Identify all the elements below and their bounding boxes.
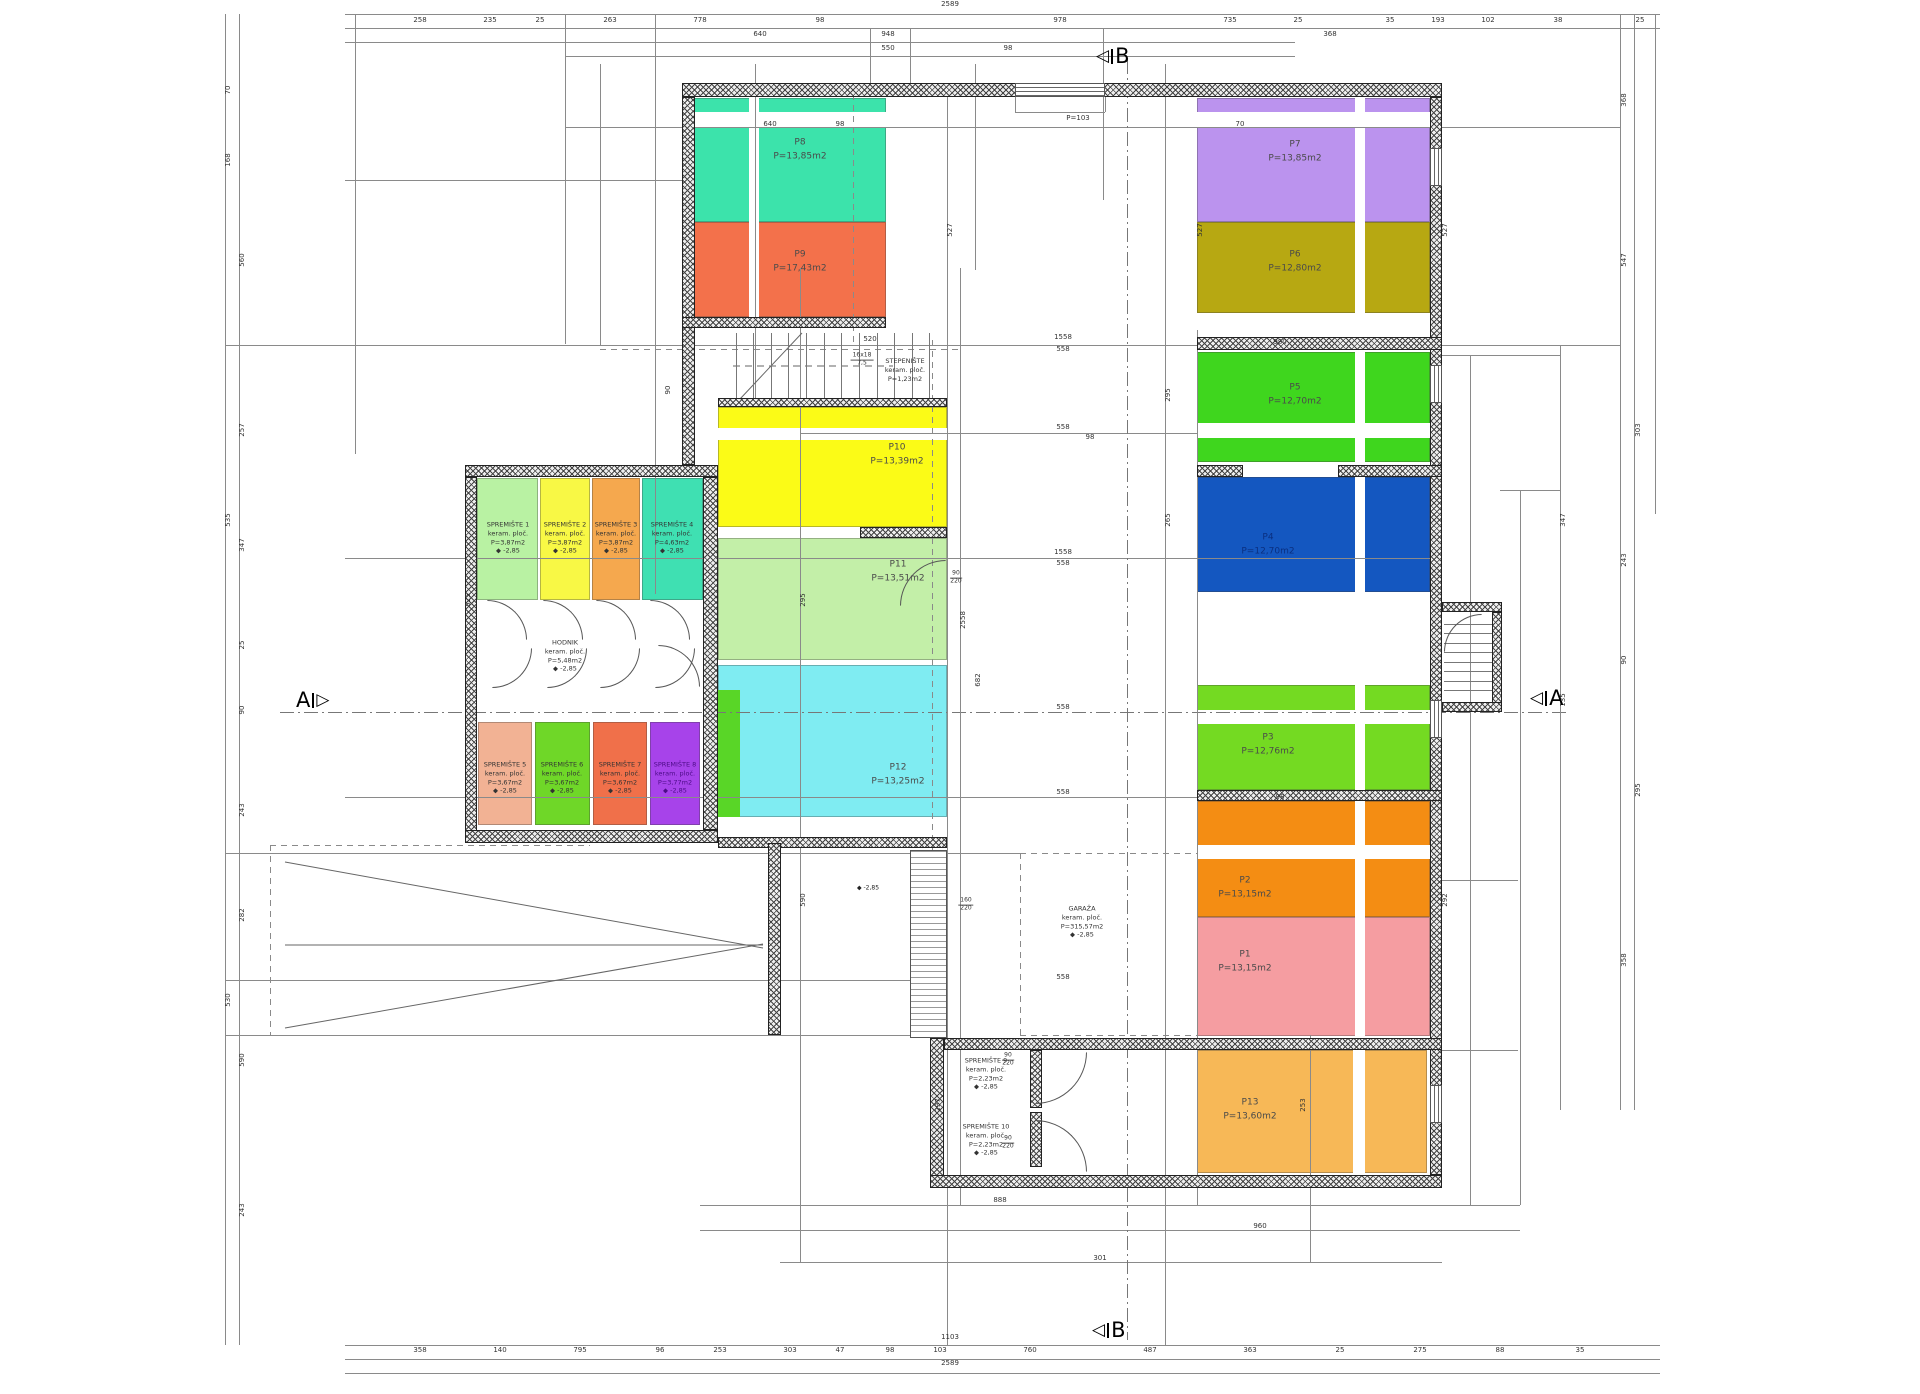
- dimension-line: [225, 14, 226, 1345]
- size-fraction-label: 90220: [1002, 1053, 1014, 1068]
- dimension-line: [1015, 112, 1105, 113]
- room-area: P=13,15m2: [1218, 889, 1271, 899]
- label-line: SPREMIŠTE 10: [963, 1122, 1010, 1130]
- dim-label: 358: [1620, 953, 1628, 966]
- dim-label: 640: [763, 120, 776, 128]
- room-label: P10P=13,39m2: [870, 442, 923, 469]
- label-line: SPREMIŠTE 2: [544, 520, 587, 528]
- section-marker-b: ◁B: [1096, 44, 1130, 68]
- dim-label: 253: [713, 1346, 726, 1354]
- dim-label: 98: [836, 120, 845, 128]
- room-label: P9P=17,43m2: [773, 249, 826, 276]
- grid-strip: [1197, 845, 1430, 859]
- label-line: keram. ploč.: [542, 769, 582, 777]
- section-letter: A: [296, 688, 310, 712]
- storage-label: SPREMIŠTE 8keram. ploč.P=3,77m2◆ -2,85: [654, 760, 697, 795]
- label-line: P=5,48m2: [548, 656, 582, 664]
- area-label: STEPENIŠTEkeram. ploč.P=1,23m2: [885, 357, 925, 383]
- dim-label: 527: [946, 223, 954, 236]
- wall-segment: [718, 398, 947, 407]
- dimension-line: [1165, 64, 1166, 1345]
- dim-label: 558: [1056, 345, 1069, 353]
- label-line: keram. ploč.: [488, 529, 528, 537]
- dim-label: 558: [1056, 703, 1069, 711]
- label-line: keram. ploč.: [885, 366, 925, 374]
- dim-label: 590: [799, 893, 807, 906]
- room-name: P8: [794, 138, 805, 148]
- storage-label: SPREMIŠTE 2keram. ploč.P=3,87m2◆ -2,85: [544, 520, 587, 555]
- dim-label: 558: [1056, 423, 1069, 431]
- dim-label: 98: [1004, 44, 1013, 52]
- dim-label: 98: [1086, 433, 1095, 441]
- label-line: ◆ -2,85: [496, 547, 520, 555]
- dimension-line: [1442, 880, 1518, 881]
- grid-strip: [718, 428, 947, 440]
- label-line: SPREMIŠTE 8: [654, 760, 697, 768]
- dim-label: 102: [1481, 16, 1494, 24]
- area-label: GARAŽAkeram. ploč.P=315,57m2◆ -2,85: [1061, 904, 1104, 939]
- size-fraction-label: 160220: [958, 898, 973, 913]
- wall-segment: [718, 837, 947, 848]
- dim-label: 265: [1164, 513, 1172, 526]
- dim-label: 275: [1413, 1346, 1426, 1354]
- stair-tread: [736, 333, 737, 399]
- window: [1430, 700, 1442, 738]
- label-line: keram. ploč.: [596, 529, 636, 537]
- room-label: P8P=13,85m2: [773, 137, 826, 164]
- room-area: P=13,85m2: [773, 151, 826, 161]
- dimension-line: [565, 14, 566, 344]
- storage-label: SPREMIŠTE 9keram. ploč.P=2,23m2◆ -2,85: [965, 1056, 1008, 1091]
- dim-label: 363: [1243, 1346, 1256, 1354]
- wall-segment: [682, 97, 695, 465]
- room-area: P=12,80m2: [1268, 263, 1321, 273]
- dim-label: 558: [1056, 788, 1069, 796]
- floor-plan-canvas: P8P=13,85m2P9P=17,43m2P7P=13,85m2P6P=12,…: [0, 0, 1920, 1394]
- room-area: P=12,76m2: [1241, 746, 1294, 756]
- door-arc: [600, 648, 640, 688]
- label-line: P=3,67m2: [545, 778, 579, 786]
- dim-label: 243: [1620, 553, 1628, 566]
- dim-label: 1103: [941, 1333, 959, 1341]
- dim-label: 297: [934, 1098, 942, 1111]
- window: [1430, 148, 1442, 186]
- size-fraction-label: 90220: [1002, 1136, 1014, 1151]
- dim-label: 368: [1620, 93, 1628, 106]
- dimension-line: [910, 28, 911, 83]
- dim-label: 2558: [959, 611, 967, 629]
- door-arc: [1035, 1052, 1087, 1104]
- dimension-line: [1442, 355, 1560, 356]
- door-arc: [650, 600, 690, 640]
- fraction-bottom: 220: [960, 905, 971, 912]
- dim-label: 90: [664, 386, 672, 395]
- label-line: ◆ -2,85: [604, 547, 628, 555]
- section-bar: [312, 693, 314, 708]
- section-marker-a: A▷: [296, 688, 329, 712]
- wall-segment: [768, 843, 781, 1035]
- dim-label: 35: [1386, 16, 1395, 24]
- stair-tread: [753, 333, 754, 399]
- room-name: P11: [890, 560, 907, 570]
- dimension-line: [565, 127, 1620, 128]
- label-line: ◆ -2,85: [493, 787, 517, 795]
- door-arc: [487, 600, 527, 640]
- room-area: P=13,51m2: [871, 573, 924, 583]
- fraction-bottom: 7,5: [857, 360, 867, 367]
- wall-segment: [944, 1038, 1442, 1050]
- dim-label: 25: [1294, 16, 1303, 24]
- label-line: SPREMIŠTE 3: [595, 520, 638, 528]
- dim-label: 547: [1620, 253, 1628, 266]
- dim-label: 90: [1620, 656, 1628, 665]
- dim-label: 760: [1023, 1346, 1036, 1354]
- section-bar: [1111, 49, 1113, 64]
- dimension-line: [1560, 345, 1561, 1110]
- door-arc: [543, 600, 583, 640]
- dim-label: 25: [1336, 1346, 1345, 1354]
- dim-label: 90: [238, 706, 246, 715]
- dimension-line: [270, 1035, 700, 1036]
- stair-tread: [788, 333, 789, 399]
- label-line: P=2,23m2: [969, 1074, 1003, 1082]
- grid-strip: [1197, 423, 1430, 438]
- storage-label: SPREMIŠTE 6keram. ploč.P=3,67m2◆ -2,85: [541, 760, 584, 795]
- dim-label: 735: [1223, 16, 1236, 24]
- label-line: SPREMIŠTE 5: [484, 760, 527, 768]
- dim-label: 96: [656, 1346, 665, 1354]
- room-label: P7P=13,85m2: [1268, 139, 1321, 166]
- wall-segment: [1338, 465, 1442, 477]
- wall-segment: [1442, 702, 1502, 712]
- size-fraction-label: 90220: [950, 571, 962, 586]
- area-label: HODNIKkeram. ploč.P=5,48m2◆ -2,85: [545, 638, 585, 673]
- room-p1: [1197, 917, 1430, 1036]
- dim-label: 243: [238, 803, 246, 816]
- section-marker-a: ◁A: [1530, 686, 1563, 710]
- dimension-line: [1655, 14, 1656, 514]
- room-label: P4P=12,70m2: [1241, 532, 1294, 559]
- section-triangle-icon: ▷: [316, 692, 329, 709]
- dimension-line: [870, 28, 871, 83]
- wall-segment: [1197, 790, 1442, 801]
- size-fraction-label: 16x187,5: [851, 353, 874, 368]
- room-area: P=13,60m2: [1223, 1111, 1276, 1121]
- room-name: P3: [1262, 733, 1273, 743]
- dim-label: 640: [753, 30, 766, 38]
- dimension-line: [655, 14, 656, 594]
- room-area: P=13,39m2: [870, 456, 923, 466]
- dim-label: 25: [536, 16, 545, 24]
- label-line: keram. ploč.: [545, 529, 585, 537]
- label-line: SPREMIŠTE 1: [487, 520, 530, 528]
- dim-label: 257: [238, 423, 246, 436]
- label-line: GARAŽA: [1068, 904, 1095, 912]
- dimension-line: [225, 980, 930, 981]
- label-line: keram. ploč.: [966, 1131, 1006, 1139]
- stair-tread: [1444, 662, 1492, 663]
- room-label: P2P=13,15m2: [1218, 875, 1271, 902]
- grid-strip: [749, 98, 759, 317]
- label-line: ◆ -2,85: [974, 1083, 998, 1091]
- dimension-line: [700, 1205, 1520, 1206]
- room-label: P3P=12,76m2: [1241, 732, 1294, 759]
- dim-label: 253: [1299, 1098, 1307, 1111]
- label-line: keram. ploč.: [655, 769, 695, 777]
- dim-label: 235: [483, 16, 496, 24]
- stair-tread: [1444, 652, 1492, 653]
- dim-label: 560: [238, 253, 246, 266]
- room-p3: [1197, 685, 1430, 790]
- door-arc: [492, 648, 532, 688]
- dim-label: 368: [1323, 30, 1336, 38]
- section-letter: A: [1549, 686, 1563, 710]
- dim-label: 888: [993, 1196, 1006, 1204]
- dimension-line: [600, 64, 601, 345]
- dim-label: 795: [573, 1346, 586, 1354]
- dimension-line: [1442, 1050, 1518, 1051]
- room-p4: [1197, 477, 1430, 592]
- dim-label: 47: [836, 1346, 845, 1354]
- dim-label: 303: [783, 1346, 796, 1354]
- dim-label: 1558: [1054, 333, 1072, 341]
- dimension-line: [800, 433, 1197, 434]
- label-line: SPREMIŠTE 7: [599, 760, 642, 768]
- stair-tread: [841, 333, 842, 399]
- dim-label: 295: [799, 593, 807, 606]
- label-line: SPREMIŠTE 4: [651, 520, 694, 528]
- fraction-bottom: 220: [950, 578, 961, 585]
- label-line: ◆ -2,85: [553, 665, 577, 673]
- dim-label: 98: [1276, 793, 1285, 801]
- dimension-line: [345, 1359, 1660, 1360]
- wall-segment: [1197, 465, 1243, 477]
- dim-label: 980: [1273, 338, 1286, 346]
- room-name: P13: [1242, 1098, 1259, 1108]
- section-bar: [1545, 691, 1547, 706]
- wall-segment: [1197, 337, 1442, 350]
- label-line: P=315,57m2: [1061, 922, 1104, 930]
- stair-tread: [929, 333, 930, 399]
- label-line: P=1,23m2: [888, 374, 922, 382]
- dimension-line: [1470, 355, 1471, 1205]
- storage-label: SPREMIŠTE 4keram. ploč.P=4,63m2◆ -2,85: [651, 520, 694, 555]
- fraction-bottom: 220: [1002, 1060, 1013, 1067]
- storage-label: SPREMIŠTE 3keram. ploč.P=3,87m2◆ -2,85: [595, 520, 638, 555]
- stair-tread: [1444, 681, 1492, 682]
- dimension-line: [1520, 490, 1521, 1205]
- dimension-line: [1020, 1035, 1197, 1036]
- room-label: P6P=12,80m2: [1268, 249, 1321, 276]
- dimension-line: [355, 14, 356, 454]
- dimension-line: [239, 14, 240, 1345]
- dim-label: 558: [1056, 559, 1069, 567]
- label-line: P=3,87m2: [548, 538, 582, 546]
- label-line: keram. ploč.: [545, 647, 585, 655]
- dimension-line: [345, 42, 1295, 43]
- dim-label: 520: [863, 335, 876, 343]
- grid-strip: [694, 112, 886, 127]
- dim-label: 70: [1236, 120, 1245, 128]
- dim-label: 168: [224, 153, 232, 166]
- dim-label: 948: [881, 30, 894, 38]
- dim-label: 530: [224, 993, 232, 1006]
- dim-label: 38: [1554, 16, 1563, 24]
- dim-label: 558: [1056, 973, 1069, 981]
- stair-tread: [1444, 671, 1492, 672]
- label-line: keram. ploč.: [652, 529, 692, 537]
- dim-label: 292: [1441, 893, 1449, 906]
- fraction-bottom: 220: [1002, 1143, 1013, 1150]
- dimension-line: [345, 14, 1660, 15]
- dim-label: 98: [886, 1346, 895, 1354]
- dim-label: 295: [1164, 388, 1172, 401]
- wall-segment: [465, 465, 718, 477]
- label-line: ◆ -2,85: [663, 787, 687, 795]
- room-label: P1P=13,15m2: [1218, 949, 1271, 976]
- section-triangle-icon: ◁: [1092, 1322, 1105, 1339]
- label-line: keram. ploč.: [485, 769, 525, 777]
- label-line: P=3,67m2: [603, 778, 637, 786]
- room-name: P12: [890, 763, 907, 773]
- room-name: P5: [1289, 383, 1300, 393]
- storage-label: SPREMIŠTE 7keram. ploč.P=3,67m2◆ -2,85: [599, 760, 642, 795]
- dimension-line: [270, 845, 271, 1035]
- grid-strip: [1355, 98, 1365, 313]
- dimension-line: [947, 83, 948, 1345]
- stair-tread: [824, 333, 825, 399]
- dim-label: 295: [1634, 783, 1642, 796]
- stair-tread: [806, 333, 807, 399]
- dim-label: 103: [933, 1346, 946, 1354]
- dimension-line: [755, 64, 756, 407]
- dimension-line: [565, 56, 1295, 57]
- room-area: P=12,70m2: [1268, 396, 1321, 406]
- label-line: ◆ -2,85: [553, 547, 577, 555]
- dim-label: 590: [238, 1053, 246, 1066]
- room-name: P7: [1289, 140, 1300, 150]
- dim-label: 98: [816, 16, 825, 24]
- label-line: P=3,67m2: [488, 778, 522, 786]
- room-area: P=12,70m2: [1241, 546, 1294, 556]
- section-triangle-icon: ◁: [1096, 48, 1109, 65]
- wall-segment: [930, 1038, 944, 1188]
- label-line: P=3,87m2: [491, 538, 525, 546]
- label-line: ◆ -2,85: [550, 787, 574, 795]
- wall-segment: [1430, 97, 1442, 1175]
- room-name: P9: [794, 250, 805, 260]
- dim-label: 347: [1559, 513, 1567, 526]
- room-label: P11P=13,51m2: [871, 559, 924, 586]
- wall-segment: [1442, 602, 1502, 612]
- wall-segment: [465, 830, 718, 843]
- dimension-line: [345, 1373, 1660, 1374]
- room-p12: [718, 665, 947, 817]
- label-line: HODNIK: [552, 638, 578, 646]
- room-area: P=13,85m2: [1268, 153, 1321, 163]
- room-name: P1: [1239, 950, 1250, 960]
- dimension-line: [1127, 60, 1128, 1340]
- dim-label: 70: [224, 86, 232, 95]
- dimension-line: [225, 853, 1020, 854]
- dim-label: 960: [1253, 1222, 1266, 1230]
- wall-segment: [682, 317, 886, 328]
- dimension-line: [1020, 853, 1197, 854]
- dim-label: 35: [1576, 1346, 1585, 1354]
- dim-label: 25: [1636, 16, 1645, 24]
- grid-strip: [1197, 112, 1430, 127]
- dim-label: 527: [1441, 223, 1449, 236]
- dimension-line: [1020, 853, 1021, 1035]
- dim-label: 358: [413, 1346, 426, 1354]
- dimension-line: [270, 845, 590, 846]
- dim-label: 25: [238, 641, 246, 650]
- level-mark: ◆ -2,85: [857, 885, 879, 892]
- dim-label: 2589: [941, 0, 959, 8]
- dimension-line: [1015, 97, 1016, 112]
- storage-label: SPREMIŠTE 5keram. ploč.P=3,67m2◆ -2,85: [484, 760, 527, 795]
- window: [1430, 1085, 1442, 1123]
- room-name: P10: [889, 443, 906, 453]
- dim-label: 1558: [1054, 548, 1072, 556]
- room-name: P6: [1289, 250, 1300, 260]
- room-label: P12P=13,25m2: [871, 762, 924, 789]
- dim-label: 978: [1053, 16, 1066, 24]
- dimension-line: [345, 1345, 1660, 1346]
- dimension-line: [800, 268, 801, 1262]
- label-line: keram. ploč.: [600, 769, 640, 777]
- dim-label: 193: [1431, 16, 1444, 24]
- dim-label: 2589: [941, 1359, 959, 1367]
- dim-label: 347: [238, 538, 246, 551]
- stair-tread: [771, 333, 772, 399]
- wall-segment: [1492, 612, 1502, 712]
- room-area: P=13,15m2: [1218, 963, 1271, 973]
- section-marker-b: ◁B: [1092, 1318, 1126, 1342]
- window: [1430, 365, 1442, 403]
- room-label: P13P=13,60m2: [1223, 1097, 1276, 1124]
- label-line: P=3,77m2: [658, 778, 692, 786]
- room-name: P4: [1262, 533, 1273, 543]
- label-line: P=2,23m2: [969, 1140, 1003, 1148]
- label-line: ◆ -2,85: [660, 547, 684, 555]
- section-bar: [1107, 1323, 1109, 1338]
- stair-tread: [877, 333, 878, 399]
- room-area: P=13,25m2: [871, 776, 924, 786]
- dim-label: 525: [464, 593, 472, 606]
- dim-label: 550: [881, 44, 894, 52]
- dimension-line: [960, 268, 961, 1205]
- dim-label: 682: [974, 673, 982, 686]
- dim-label: 487: [1143, 1346, 1156, 1354]
- dimension-line: [1634, 14, 1635, 1110]
- dim-label: 778: [693, 16, 706, 24]
- section-triangle-icon: ◁: [1530, 690, 1543, 707]
- label-line: ◆ -2,85: [1070, 931, 1094, 939]
- garage-door-grate: [910, 850, 947, 1038]
- dimension-line: [345, 180, 694, 181]
- dim-label: 282: [238, 908, 246, 921]
- dimension-line: [853, 83, 854, 345]
- dimension-line: [1500, 490, 1560, 491]
- dimension-line: [1310, 1035, 1311, 1262]
- dim-label: 88: [1496, 1346, 1505, 1354]
- dimension-line: [1105, 97, 1106, 112]
- dim-label: 301: [1093, 1254, 1106, 1262]
- dim-label: 303: [1634, 423, 1642, 436]
- wall-segment: [465, 477, 477, 843]
- wall-segment: [860, 527, 947, 538]
